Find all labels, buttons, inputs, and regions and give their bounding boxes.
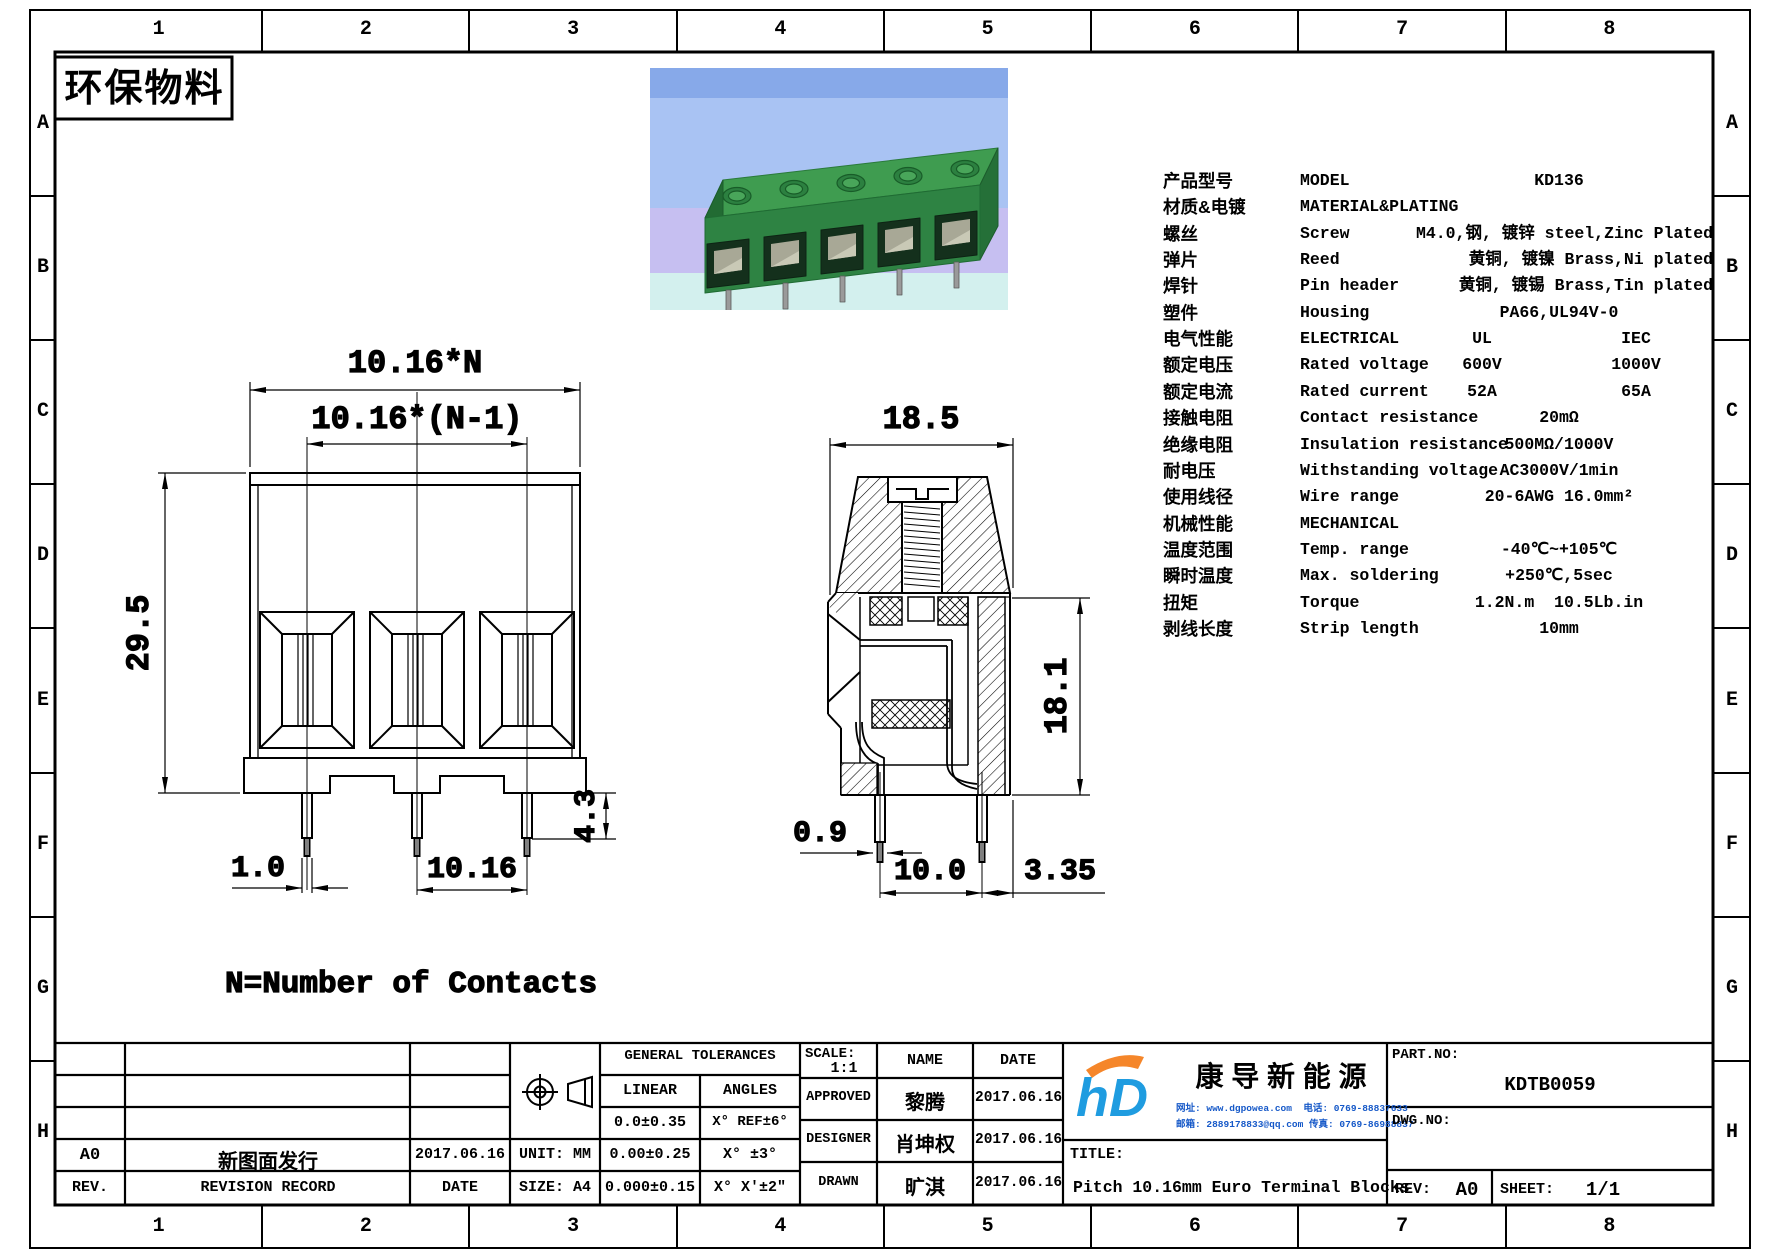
spec-row: 电气性能ELECTRICALULIEC: [1163, 326, 1713, 352]
spec-value-text: 黄铜, 镀镍 Brass,Ni plated: [1469, 247, 1713, 273]
spec-value-text: 黄铜, 镀锡 Brass,Tin plated: [1459, 273, 1713, 299]
spec-label-en: MECHANICAL: [1300, 511, 1580, 537]
zone-letter: D: [1714, 540, 1750, 572]
zone-letter: C: [1714, 396, 1750, 428]
tolerance-angle-1: X° REF±6°: [702, 1114, 798, 1130]
spec-row: 螺丝ScrewM4.0,钢, 镀锌 steel,Zinc Plated: [1163, 221, 1713, 247]
signoff-name: 黎腾: [879, 1086, 971, 1115]
zone-number: 2: [346, 13, 386, 47]
spec-value-text: KD136: [1534, 168, 1584, 194]
zone-letter: D: [31, 540, 55, 572]
dim-pin-width: 1.0: [231, 852, 285, 886]
title-label: TITLE:: [1070, 1146, 1160, 1163]
dim-total-width: 10.16*N: [348, 345, 482, 382]
revision-date: 2017.06.16: [412, 1146, 508, 1163]
signoff-name: 旷淇: [879, 1171, 971, 1200]
signoff-role: DRAWN: [801, 1175, 876, 1190]
projection-symbol-icon: [522, 1074, 592, 1110]
sheet-value: 1/1: [1563, 1179, 1643, 1201]
spec-value: +250℃,5sec: [1405, 563, 1713, 589]
dim-pin-length: 4.3: [570, 789, 604, 843]
spec-label-cn: 瞬时温度: [1163, 563, 1295, 589]
side-view: [828, 477, 1010, 898]
company-logo-icon: hD: [1072, 1048, 1172, 1136]
zone-letter: H: [31, 1117, 55, 1149]
sheet-label: SHEET:: [1500, 1181, 1570, 1198]
zone-number: 6: [1175, 13, 1215, 47]
spec-value-ul: UL: [1405, 326, 1559, 352]
zone-number: 4: [760, 13, 800, 47]
spec-value: 黄铜, 镀镍 Brass,Ni plated: [1405, 247, 1713, 273]
company-contact-1: 网址: www.dgpowea.com 电话: 0769-88837633: [1176, 1100, 1386, 1114]
zone-letter: F: [1714, 829, 1750, 861]
angles-header: ANGLES: [702, 1082, 798, 1099]
spec-row: 额定电压Rated voltage600V1000V: [1163, 352, 1713, 378]
spec-value-text: M4.0,钢, 镀锌 steel,Zinc Plated: [1416, 221, 1713, 247]
spec-row: 产品型号MODELKD136: [1163, 168, 1713, 194]
zone-number: 6: [1175, 1210, 1215, 1244]
dim-side-pin-spacing: 10.0: [894, 855, 966, 889]
revision-rev: A0: [60, 1146, 120, 1165]
spec-label-cn: 电气性能: [1163, 326, 1295, 352]
revision-desc: 新图面发行: [130, 1145, 406, 1174]
spec-value-text: PA66,UL94V-0: [1500, 300, 1619, 326]
dim-side-pin-width: 0.9: [793, 817, 847, 851]
spec-value: 20-6AWG 16.0mm²: [1405, 484, 1713, 510]
spec-label-cn: 温度范围: [1163, 537, 1295, 563]
spec-value: 600V1000V: [1405, 352, 1713, 378]
spec-label-cn: 弹片: [1163, 247, 1295, 273]
spec-row: 材质&电镀MATERIAL&PLATING: [1163, 194, 1713, 220]
spec-table: 产品型号MODELKD136材质&电镀MATERIAL&PLATING螺丝Scr…: [1163, 168, 1713, 643]
side-view-dimensions: 18.5 18.1 0.9 10.0 3.35: [793, 401, 1105, 898]
general-tolerances-header: GENERAL TOLERANCES: [602, 1048, 798, 1064]
front-view: [244, 392, 586, 895]
spec-row: 焊针Pin header黄铜, 镀锡 Brass,Tin plated: [1163, 273, 1713, 299]
zone-letter: H: [1714, 1117, 1750, 1149]
spec-value-iec: IEC: [1559, 326, 1713, 352]
unit-cell: UNIT: MM: [512, 1146, 598, 1163]
spec-label-cn: 塑件: [1163, 300, 1295, 326]
zone-number: 4: [760, 1210, 800, 1244]
spec-value: -40℃~+105℃: [1405, 537, 1713, 563]
zone-number: 1: [139, 13, 179, 47]
spec-label-cn: 机械性能: [1163, 511, 1295, 537]
date-header-left: DATE: [412, 1179, 508, 1196]
dim-height: 29.5: [121, 595, 158, 672]
signoff-role: APPROVED: [801, 1090, 876, 1105]
size-cell: SIZE: A4: [512, 1179, 598, 1196]
spec-value-text: 500MΩ/1000V: [1505, 432, 1614, 458]
zone-letter: C: [31, 396, 55, 428]
signoff-date: 2017.06.16: [975, 1090, 1061, 1106]
zone-number: 2: [346, 1210, 386, 1244]
spec-value-ul: 600V: [1405, 352, 1559, 378]
spec-value: 黄铜, 镀锡 Brass,Tin plated: [1405, 273, 1713, 299]
spec-row: 额定电流Rated current52A65A: [1163, 379, 1713, 405]
spec-row: 温度范围Temp. range-40℃~+105℃: [1163, 537, 1713, 563]
tolerance-linear-1: 0.0±0.35: [602, 1114, 698, 1131]
spec-value-text: 20-6AWG 16.0mm²: [1485, 484, 1634, 510]
product-photo: [650, 68, 1008, 310]
dwg-no-label: DWG.NO:: [1392, 1113, 1502, 1129]
spec-value: 10mm: [1405, 616, 1713, 642]
zone-number: 8: [1589, 13, 1629, 47]
signoff-date: 2017.06.16: [975, 1175, 1061, 1191]
spec-value-iec: 1000V: [1559, 352, 1713, 378]
drawing-sheet: 10.16*N 10.16*(N-1) 29.5 1.0 10.16 4.3 N…: [0, 0, 1778, 1257]
spec-value: AC3000V/1min: [1405, 458, 1713, 484]
rev-value: A0: [1438, 1179, 1496, 1201]
company-contact-2: 邮箱: 2889178833@qq.com 传真: 0769-86988837: [1176, 1116, 1386, 1130]
spec-label-cn: 材质&电镀: [1163, 194, 1295, 220]
spec-label-cn: 焊针: [1163, 273, 1295, 299]
spec-label-cn: 螺丝: [1163, 221, 1295, 247]
title-value: Pitch 10.16mm Euro Terminal Blocks: [1073, 1178, 1413, 1197]
zone-letter: G: [1714, 973, 1750, 1005]
part-no-label: PART.NO:: [1392, 1047, 1502, 1063]
zone-letter: E: [1714, 685, 1750, 717]
part-no-value: KDTB0059: [1387, 1074, 1713, 1096]
zone-letter: E: [31, 685, 55, 717]
spec-row: 塑件HousingPA66,UL94V-0: [1163, 300, 1713, 326]
pins-side: [875, 795, 987, 862]
spec-label-cn: 剥线长度: [1163, 616, 1295, 642]
spec-label-cn: 扭矩: [1163, 590, 1295, 616]
revision-record-header: REVISION RECORD: [130, 1179, 406, 1196]
tolerance-angle-2: X° ±3°: [702, 1146, 798, 1163]
spec-value-ul: 52A: [1405, 379, 1559, 405]
spec-label-en: MATERIAL&PLATING: [1300, 194, 1580, 220]
spec-value-text: 20mΩ: [1539, 405, 1579, 431]
zone-letter: A: [1714, 108, 1750, 140]
signoff-date: 2017.06.16: [975, 1132, 1061, 1148]
linear-header: LINEAR: [602, 1082, 698, 1099]
spec-row: 耐电压Withstanding voltageAC3000V/1min: [1163, 458, 1713, 484]
spec-value-text: 1.2N.m 10.5Lb.in: [1475, 590, 1643, 616]
dim-side-height: 18.1: [1039, 658, 1076, 735]
spec-value: 52A65A: [1405, 379, 1713, 405]
spec-row: 机械性能MECHANICAL: [1163, 511, 1713, 537]
spec-value: KD136: [1405, 168, 1713, 194]
signoff-name: 肖坤权: [879, 1128, 971, 1157]
signoff-role: DESIGNER: [801, 1132, 876, 1147]
spec-row: 扭矩Torque1.2N.m 10.5Lb.in: [1163, 590, 1713, 616]
spec-value: ULIEC: [1405, 326, 1713, 352]
spec-row: 接触电阻Contact resistance20mΩ: [1163, 405, 1713, 431]
zone-letter: A: [31, 108, 55, 140]
spec-value-text: AC3000V/1min: [1500, 458, 1619, 484]
zone-number: 1: [139, 1210, 179, 1244]
zone-letter: B: [31, 252, 55, 284]
date-header-mid: DATE: [975, 1052, 1061, 1069]
spec-row: 使用线径Wire range20-6AWG 16.0mm²: [1163, 484, 1713, 510]
eco-stamp: 环保物料: [62, 62, 227, 116]
rev-header: REV.: [60, 1179, 120, 1196]
zone-number: 3: [553, 1210, 593, 1244]
spec-value-text: -40℃~+105℃: [1501, 537, 1617, 563]
front-view-dimensions: 10.16*N 10.16*(N-1) 29.5 1.0 10.16 4.3 N…: [121, 345, 616, 1002]
spec-value-iec: 65A: [1559, 379, 1713, 405]
spec-label-cn: 绝缘电阻: [1163, 432, 1295, 458]
svg-text:hD: hD: [1076, 1068, 1148, 1128]
dim-pitch-width: 10.16*(N-1): [311, 401, 522, 438]
spec-value-text: +250℃,5sec: [1505, 563, 1613, 589]
spec-value: 20mΩ: [1405, 405, 1713, 431]
spec-value-text: 10mm: [1539, 616, 1579, 642]
spec-value: M4.0,钢, 镀锌 steel,Zinc Plated: [1405, 221, 1713, 247]
spec-row: 剥线长度Strip length10mm: [1163, 616, 1713, 642]
scale-value: 1:1: [814, 1060, 874, 1077]
name-header: NAME: [879, 1052, 971, 1069]
spec-label-cn: 使用线径: [1163, 484, 1295, 510]
dim-side-width: 18.5: [883, 401, 960, 438]
zone-letter: G: [31, 973, 55, 1005]
tolerance-angle-3: X° X'±2": [702, 1179, 798, 1196]
zone-number: 7: [1382, 1210, 1422, 1244]
zone-letter: F: [31, 829, 55, 861]
spec-row: 绝缘电阻Insulation resistance500MΩ/1000V: [1163, 432, 1713, 458]
zone-number: 3: [553, 13, 593, 47]
tolerance-linear-2: 0.00±0.25: [602, 1146, 698, 1163]
zone-number: 5: [968, 13, 1008, 47]
spec-value: PA66,UL94V-0: [1405, 300, 1713, 326]
zone-letter: B: [1714, 252, 1750, 284]
company-name: 康 导 新 能 源: [1175, 1055, 1387, 1095]
spec-value: 500MΩ/1000V: [1405, 432, 1713, 458]
dim-pin-pitch: 10.16: [427, 853, 517, 887]
spec-value: 1.2N.m 10.5Lb.in: [1405, 590, 1713, 616]
spec-row: 弹片Reed黄铜, 镀镍 Brass,Ni plated: [1163, 247, 1713, 273]
spec-label-cn: 接触电阻: [1163, 405, 1295, 431]
dim-side-pin-offset: 3.35: [1024, 855, 1096, 889]
contacts-note: N=Number of Contacts: [225, 967, 597, 1002]
spec-label-cn: 产品型号: [1163, 168, 1295, 194]
zone-number: 7: [1382, 13, 1422, 47]
spec-label-cn: 额定电流: [1163, 379, 1295, 405]
zone-number: 5: [968, 1210, 1008, 1244]
zone-number: 8: [1589, 1210, 1629, 1244]
spec-row: 瞬时温度Max. soldering+250℃,5sec: [1163, 563, 1713, 589]
spec-label-cn: 额定电压: [1163, 352, 1295, 378]
tolerance-linear-3: 0.000±0.15: [602, 1179, 698, 1196]
spec-label-cn: 耐电压: [1163, 458, 1295, 484]
